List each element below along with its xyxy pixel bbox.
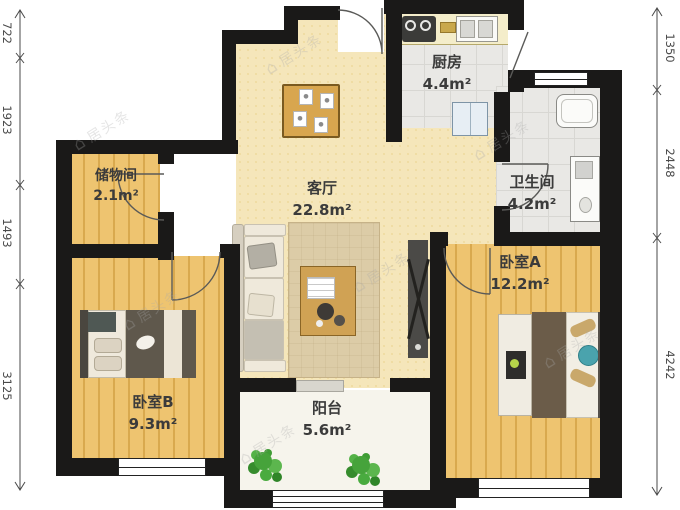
wall-segment [430, 232, 446, 494]
wall-segment [600, 70, 622, 498]
wall-segment [220, 244, 238, 258]
outside-area [236, 0, 284, 30]
room-name: 厨房 [423, 52, 472, 74]
headboard [80, 310, 88, 378]
wall-segment [430, 232, 448, 246]
wall-segment [222, 30, 236, 152]
window [534, 72, 588, 86]
place-setting [293, 111, 307, 127]
room-name: 卫生间 [508, 172, 557, 194]
place-setting [299, 89, 313, 105]
kitchen-counter [400, 14, 508, 45]
room-name: 客厅 [292, 178, 351, 200]
window [118, 458, 206, 476]
counter-item [440, 22, 456, 33]
room-label-kitchen: 厨房4.4m² [423, 52, 472, 96]
blanket [532, 312, 566, 418]
room-area: 22.8m² [292, 200, 351, 222]
dim-label-right-1350: 1350 [663, 26, 677, 70]
dim-label-left-1923: 1923 [0, 98, 14, 142]
room-area: 2.1m² [93, 186, 139, 206]
sofa [232, 224, 288, 372]
room-label-bedroom-a: 卧室A12.2m² [490, 252, 549, 296]
magazine [307, 277, 335, 299]
refrigerator [452, 102, 488, 136]
wall-segment [56, 244, 166, 258]
blanket-stripe [164, 310, 182, 378]
room-label-bedroom-b: 卧室B9.3m² [129, 392, 178, 436]
room-label-living: 客厅22.8m² [292, 178, 351, 222]
pillow [94, 338, 122, 353]
room-area: 12.2m² [490, 274, 549, 296]
dim-label-left-1493: 1493 [0, 211, 14, 255]
entry-door-swing-area [338, 0, 384, 52]
kitchen-sink [456, 16, 498, 42]
potted-plant [254, 452, 272, 470]
coffee-table [300, 266, 356, 336]
shower-unit [570, 156, 600, 222]
room-label-balcony: 阳台5.6m² [303, 398, 352, 442]
place-setting [320, 93, 334, 109]
cooktop [402, 16, 436, 42]
potted-plant [352, 456, 370, 474]
wall-segment [494, 92, 510, 162]
dim-label-right-4242: 4242 [663, 343, 677, 387]
wall-segment [384, 0, 524, 14]
dark-throw [88, 312, 116, 332]
console-item [415, 344, 421, 350]
room-area: 4.4m² [423, 74, 472, 96]
wall-segment [386, 6, 402, 142]
bedroom-b-bed [80, 310, 196, 378]
bedroom-a-bed [498, 312, 606, 418]
wall-segment [56, 140, 72, 476]
tv-console [408, 240, 428, 358]
blanket-edge [182, 310, 196, 378]
dim-label-right-2448: 2448 [663, 141, 677, 185]
room-area: 5.6m² [303, 420, 352, 442]
window [478, 478, 590, 498]
wall-segment [224, 244, 240, 508]
sliding-window [272, 490, 384, 508]
pillow [94, 356, 122, 371]
floor-plan: 客厅22.8m² 厨房4.4m² 卫生间4.2m² 卧室A12.2m² 卧室B9… [0, 0, 680, 510]
dim-label-left-3125: 3125 [0, 364, 14, 408]
room-area: 4.2m² [508, 194, 557, 216]
room-name: 卧室B [129, 392, 178, 414]
room-name: 阳台 [303, 398, 352, 420]
wall-segment [508, 76, 524, 92]
room-area: 9.3m² [129, 414, 178, 436]
room-label-bathroom: 卫生间4.2m² [508, 172, 557, 216]
room-label-storage: 储物间2.1m² [93, 166, 139, 207]
wall-segment [224, 378, 296, 392]
balcony-door-sill [296, 380, 344, 392]
round-cushion [578, 345, 599, 366]
bathtub [556, 94, 598, 128]
place-setting [314, 117, 328, 133]
teapot [317, 303, 334, 320]
dim-label-left-722: 722 [0, 11, 14, 55]
wall-segment [158, 140, 174, 164]
foot-cabinet [498, 314, 532, 416]
room-name: 储物间 [93, 166, 139, 186]
wall-segment [56, 140, 238, 154]
room-name: 卧室A [490, 252, 549, 274]
